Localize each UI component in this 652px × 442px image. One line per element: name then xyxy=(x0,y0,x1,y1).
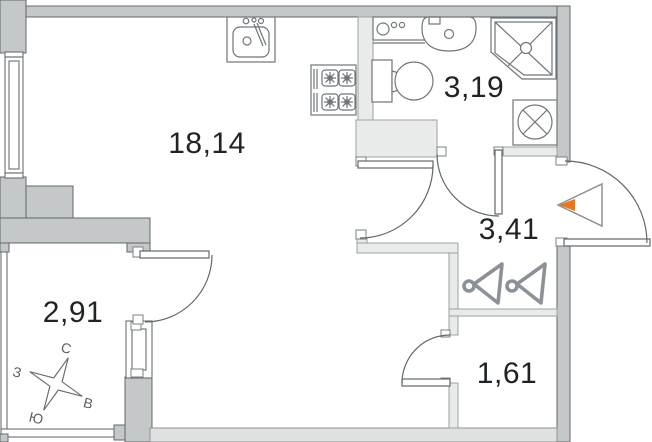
window-living-left xyxy=(5,52,23,178)
toilet-icon xyxy=(372,60,433,102)
living-kitchen-area-label: 18,14 xyxy=(168,127,246,160)
storage-area-label: 1,61 xyxy=(477,357,537,390)
wall-left-upper xyxy=(0,0,26,53)
entrance-arrow-icon xyxy=(558,184,602,226)
wall-balcony-divider xyxy=(0,218,150,243)
compass-west-label: З xyxy=(11,363,23,381)
wall-niche-top xyxy=(357,243,458,253)
wall-bottom xyxy=(150,428,557,442)
compass-rose-icon: С З В Ю xyxy=(11,339,95,427)
floorplan-canvas: С З В Ю 18,14 3,19 3,41 2,91 1,61 xyxy=(0,0,652,442)
wall-storage-left-upper xyxy=(449,253,458,335)
compass-east-label: В xyxy=(82,394,95,412)
bathroom-sink-icon xyxy=(422,17,476,51)
stove-icon xyxy=(311,65,356,115)
balcony-door xyxy=(133,247,212,324)
wall-top xyxy=(26,6,570,17)
bathroom-area-label: 3,19 xyxy=(444,71,504,104)
wardrobe-hangers-icon xyxy=(464,264,545,303)
wall-right-upper xyxy=(557,6,570,162)
window-balcony-door-unit xyxy=(126,321,152,378)
kitchen-sink-icon xyxy=(227,17,275,62)
storage-door xyxy=(402,330,450,386)
balcony-area-label: 2,91 xyxy=(43,296,103,329)
vent-shaft-icon xyxy=(513,100,557,145)
wall-storage-left-lower xyxy=(449,383,458,428)
compass-south-label: Ю xyxy=(27,409,45,428)
hallway-area-label: 3,41 xyxy=(479,213,539,246)
wall-niche-bottom xyxy=(449,309,557,316)
wall-right-lower xyxy=(557,243,570,442)
hallway-door xyxy=(356,157,433,239)
bathroom-door xyxy=(437,147,503,216)
shower-cabin-icon xyxy=(491,18,556,79)
wall-bathroom-block xyxy=(356,120,437,157)
wall-balcony-right xyxy=(125,377,152,442)
floorplan-drawing: С З В Ю 18,14 3,19 3,41 2,91 1,61 xyxy=(0,0,652,442)
washing-machine-icon xyxy=(373,17,425,43)
wall-bathroom-south-right xyxy=(503,147,557,156)
wall-left-step xyxy=(26,186,73,218)
wall-bathroom-left xyxy=(358,17,373,120)
doors xyxy=(133,147,650,386)
compass-north-label: С xyxy=(59,339,73,357)
